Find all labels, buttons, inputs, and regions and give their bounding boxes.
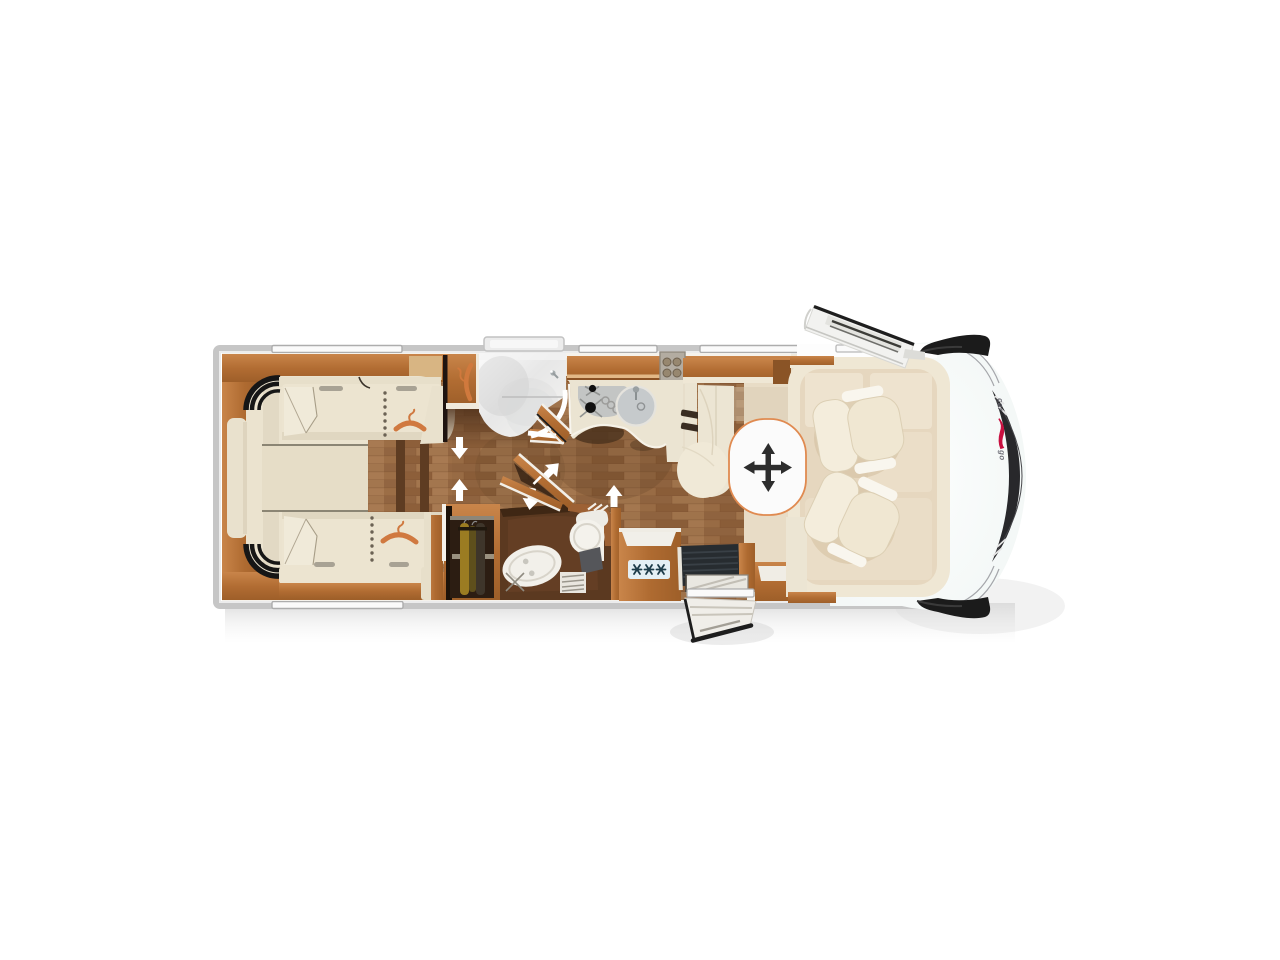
svg-text:car: car [996, 398, 1005, 412]
svg-text:go: go [997, 449, 1006, 461]
